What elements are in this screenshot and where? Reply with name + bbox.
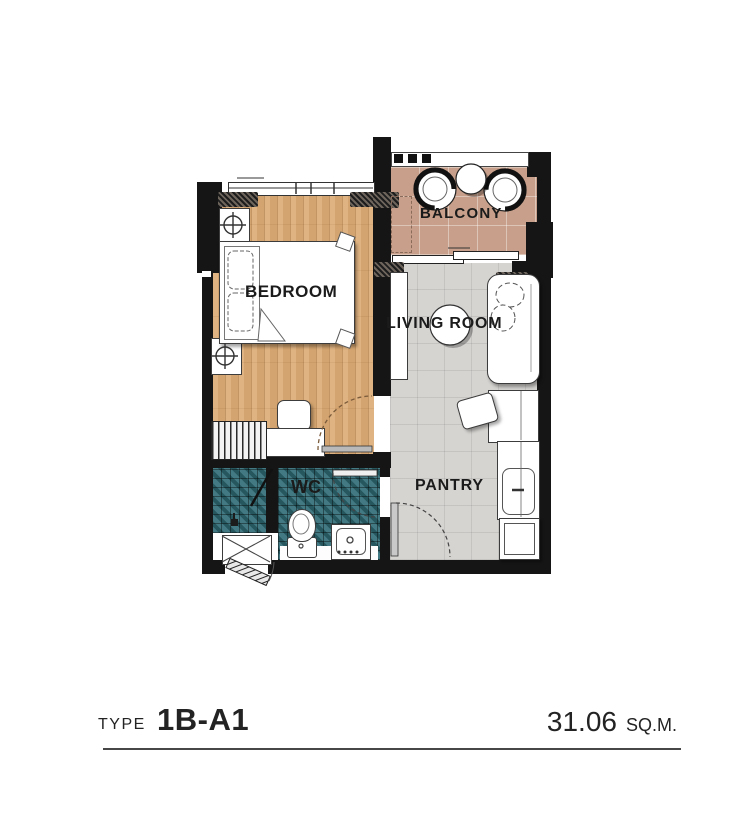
bedpost-top [336,232,355,251]
room-label-balcony: BALCONY [420,205,503,222]
room-label-bedroom: BEDROOM [245,282,337,302]
room-label-living: LIVING ROOM [386,315,502,333]
balcony-chair-left [414,168,456,210]
floorplan-page: BEDROOM BALCONY LIVING ROOM WC PANTRY TY… [0,0,750,825]
shower-drain [231,513,238,526]
caption-area-unit: SQ.M. [626,715,677,736]
caption-area: 31.06 SQ.M. [547,706,677,738]
lamp-symbol-bottom [212,343,238,369]
plan-detail-overlay [0,0,750,825]
room-label-wc: WC [291,477,321,498]
caption-divider-line [103,748,681,750]
pantry-door-swing-arc [396,503,450,557]
bedroom-door-leaf [322,446,372,452]
shoe-cabinet-x-mark [222,536,270,562]
vanity-dots [338,551,359,554]
pantry-door-leaf [391,503,398,556]
toilet-flush-button [299,544,303,548]
bed-blanket-fold [258,309,285,341]
room-label-pantry: PANTRY [415,477,484,495]
caption-type-label: TYPE [98,716,146,734]
shower-door [251,469,272,506]
vanity-drain [347,537,353,543]
caption-area-value: 31.06 [547,706,617,738]
caption-type-value: 1B-A1 [157,702,249,738]
balcony-table [456,164,489,197]
lamp-symbol-top [220,212,246,238]
toilet-bowl-inner [293,514,309,534]
bedroom-door-swing-arc [318,396,372,450]
entrance-door-leaf [226,558,270,585]
bedpost-bottom [336,329,355,348]
bedroom-window-frame [228,178,373,194]
wc-door-swing-arc [333,473,377,517]
wc-door-leaf [333,470,377,476]
